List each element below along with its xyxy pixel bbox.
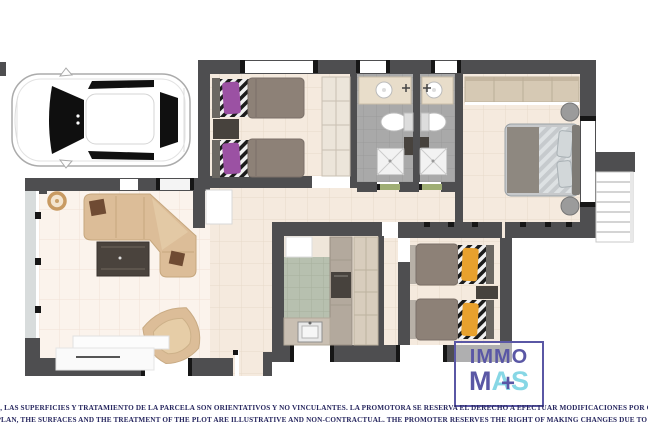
plot-edge-marker bbox=[0, 62, 6, 76]
car-top-view-icon bbox=[12, 68, 190, 168]
side-mirror bbox=[60, 68, 72, 76]
floor-plan-render bbox=[0, 0, 648, 439]
wardrobe bbox=[465, 77, 579, 105]
coffee-table bbox=[97, 242, 149, 276]
living-window-wall bbox=[25, 191, 41, 338]
floor-plan-page: IMMO MAS + ESTE PLANO ARTISTICO, LAS SUP… bbox=[0, 0, 648, 439]
immo-mas-logo: IMMO MAS + bbox=[454, 341, 544, 407]
single-bed bbox=[410, 244, 494, 285]
drawer-handle bbox=[76, 356, 120, 358]
roof bbox=[86, 94, 154, 144]
pillow bbox=[557, 130, 574, 157]
headboard bbox=[572, 125, 580, 195]
counter bbox=[330, 237, 352, 345]
rear-window bbox=[160, 92, 178, 148]
tv-sideboard bbox=[56, 336, 169, 370]
double-bed bbox=[505, 124, 580, 196]
logo-line-mas: MAS bbox=[456, 368, 542, 395]
disclaimer-line-en: THIS ARTISTIC PLAN, THE SURFACES AND THE… bbox=[0, 416, 648, 424]
sink-counter bbox=[284, 318, 330, 345]
plus-icon: + bbox=[501, 372, 515, 396]
shower bbox=[377, 148, 404, 175]
round-nightstand bbox=[561, 103, 579, 121]
terrace-edge bbox=[508, 238, 511, 348]
toilet bbox=[381, 113, 407, 131]
bath-cabinet bbox=[404, 137, 413, 155]
door-swing bbox=[206, 190, 232, 224]
pantry bbox=[354, 237, 378, 345]
corridor-floor bbox=[384, 238, 398, 345]
bath-mat bbox=[422, 184, 442, 190]
bath-mat bbox=[380, 184, 400, 190]
single-bed bbox=[212, 139, 304, 178]
single-bed bbox=[212, 78, 304, 118]
logo-line-immo: IMMO bbox=[456, 347, 542, 367]
logo-letter-m: M bbox=[469, 366, 492, 396]
round-rug bbox=[49, 193, 65, 209]
round-nightstand bbox=[561, 197, 579, 215]
fridge bbox=[286, 237, 312, 257]
disclaimer-line-es: ESTE PLANO ARTISTICO, LAS SUPERFICIES Y … bbox=[0, 404, 648, 412]
pillow bbox=[557, 160, 574, 187]
nightstand bbox=[213, 119, 239, 139]
throw-pillow bbox=[89, 199, 106, 216]
single-bed bbox=[410, 299, 494, 340]
shower bbox=[420, 148, 447, 175]
nightstand bbox=[476, 286, 498, 299]
wardrobe bbox=[322, 77, 350, 176]
staircase bbox=[596, 172, 633, 242]
